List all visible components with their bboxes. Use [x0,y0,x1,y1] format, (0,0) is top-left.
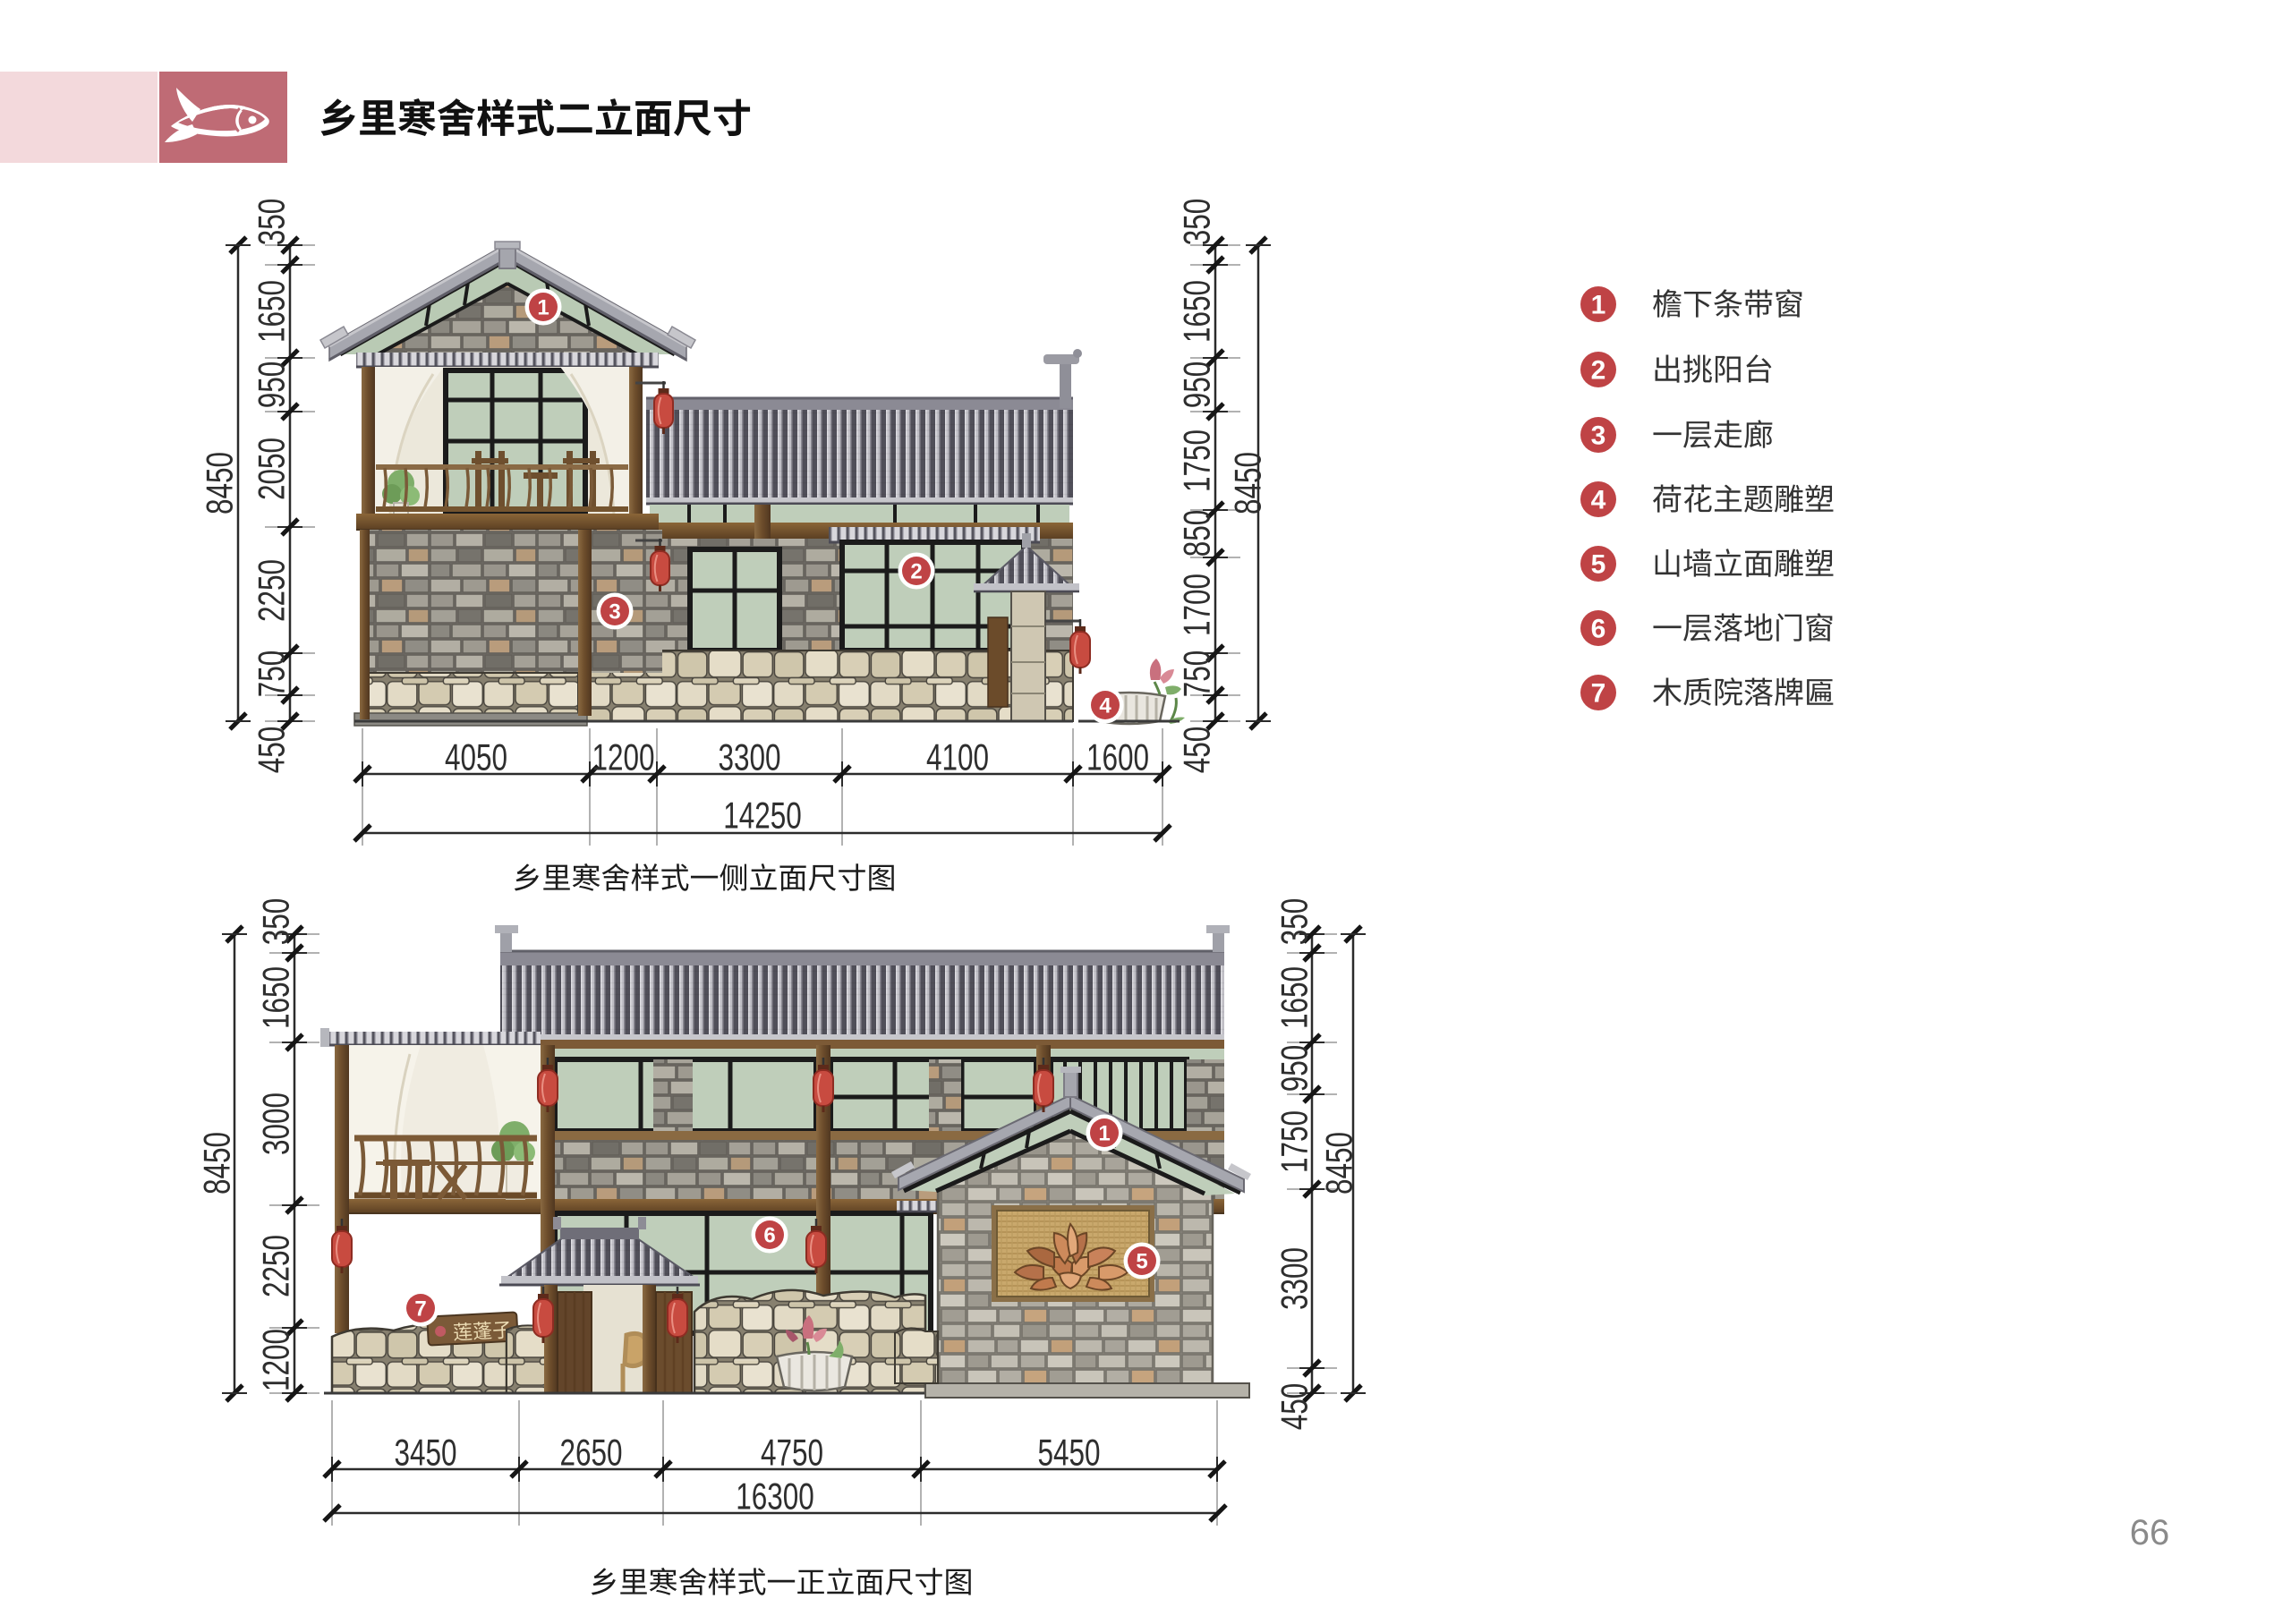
svg-text:8450: 8450 [198,452,241,514]
svg-text:3300: 3300 [718,735,780,778]
svg-text:1650: 1650 [1273,966,1316,1029]
svg-text:16300: 16300 [736,1475,814,1518]
svg-text:850: 850 [1175,510,1218,557]
svg-text:1200: 1200 [592,735,654,778]
svg-text:1: 1 [1098,1122,1110,1146]
svg-text:4100: 4100 [926,735,989,778]
svg-text:6: 6 [1591,615,1606,644]
svg-text:4: 4 [1591,486,1606,515]
svg-text:3000: 3000 [254,1093,297,1155]
svg-text:3450: 3450 [394,1431,456,1474]
svg-text:5: 5 [1136,1250,1147,1274]
svg-text:750: 750 [1175,650,1218,698]
svg-text:750: 750 [250,650,293,698]
svg-text:1650: 1650 [250,280,293,343]
svg-text:450: 450 [250,727,293,774]
svg-text:1700: 1700 [1175,574,1218,636]
svg-text:350: 350 [1273,898,1316,946]
svg-text:7: 7 [414,1297,426,1322]
svg-text:1200: 1200 [254,1329,297,1391]
svg-text:2050: 2050 [250,438,293,500]
svg-text:5: 5 [1591,550,1606,580]
svg-text:2250: 2250 [254,1235,297,1297]
svg-text:950: 950 [250,361,293,409]
svg-text:1: 1 [537,296,549,320]
svg-text:350: 350 [1175,199,1218,246]
svg-text:1650: 1650 [1175,280,1218,343]
svg-text:450: 450 [1273,1383,1316,1431]
svg-text:3300: 3300 [1273,1247,1316,1310]
svg-text:6: 6 [763,1224,775,1248]
svg-text:5450: 5450 [1037,1431,1100,1474]
svg-text:7: 7 [1591,679,1606,709]
svg-text:8450: 8450 [1226,452,1269,514]
svg-text:4750: 4750 [761,1431,823,1474]
svg-text:8450: 8450 [195,1132,238,1195]
svg-text:350: 350 [254,898,297,946]
svg-text:2650: 2650 [559,1431,622,1474]
svg-text:350: 350 [250,199,293,246]
svg-text:950: 950 [1273,1045,1316,1093]
svg-text:1650: 1650 [254,966,297,1029]
svg-text:2: 2 [1591,356,1606,386]
svg-text:8450: 8450 [1317,1132,1360,1195]
svg-text:1: 1 [1591,291,1606,320]
svg-text:4: 4 [1099,694,1111,718]
svg-text:66: 66 [2130,1513,2170,1552]
svg-text:2: 2 [910,560,922,584]
svg-text:2250: 2250 [250,559,293,622]
svg-text:1750: 1750 [1273,1110,1316,1173]
svg-text:450: 450 [1175,727,1218,774]
svg-text:1600: 1600 [1086,735,1149,778]
svg-text:1750: 1750 [1175,429,1218,492]
svg-text:14250: 14250 [723,794,802,837]
svg-text:950: 950 [1175,361,1218,409]
svg-text:3: 3 [609,600,620,625]
svg-text:3: 3 [1591,421,1606,451]
svg-text:4050: 4050 [445,735,507,778]
